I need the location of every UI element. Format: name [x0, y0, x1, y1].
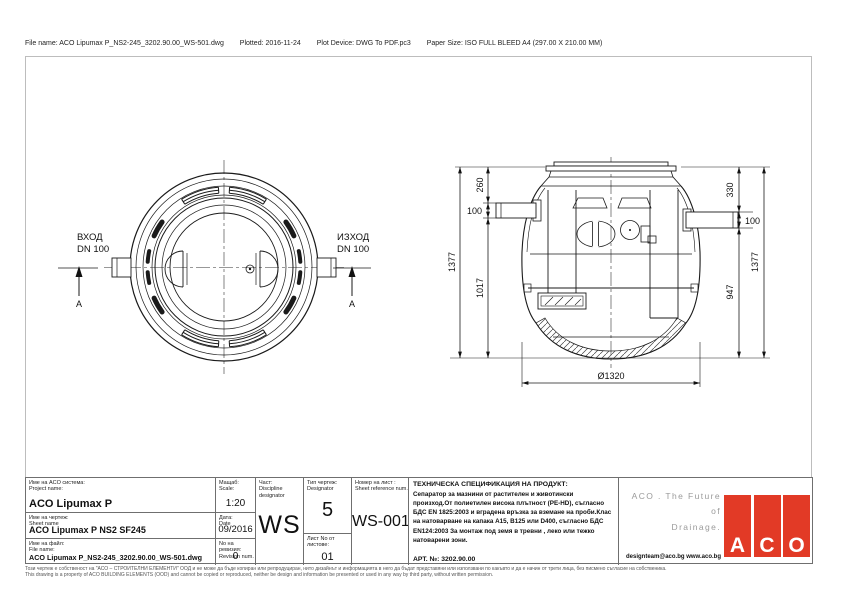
section-letter-left: A [76, 299, 82, 309]
tb-discipline-cell: Част: Discipline designator WS [256, 478, 304, 565]
type-value: 5 [304, 499, 351, 522]
section-view-drawing [450, 157, 770, 387]
plot-filename: File name: ACO Lipumax P_NS2-245_3202.90… [25, 40, 224, 47]
sheet-name: ACO Lipumax P NS2 SF245 [29, 525, 146, 535]
dim-diameter: Ø1320 [597, 371, 624, 381]
section-marker-left [58, 266, 98, 296]
sheetname-label-bg: Име на чертеж: [29, 515, 68, 521]
aco-logo-bar: O [783, 495, 810, 557]
inlet-dn-label: DN 100 [77, 244, 109, 255]
brand-slogan: ACO . The Future of Drainage. [629, 489, 721, 535]
sheetref-label-bg: Номер на лист : [355, 480, 396, 486]
sheetref-label-en: Sheet reference num. [355, 486, 408, 492]
type-label-bg: Тип чертеж: [307, 480, 337, 486]
spec-title: ТЕХНИЧЕСКА СПЕЦИФИКАЦИЯ НА ПРОДУКТ: [413, 481, 614, 488]
tb-filename-cell: Име на файл: File name: ACO Lipumax P_NS… [26, 539, 216, 565]
discipline-value: WS [256, 511, 303, 540]
section-marker-right [333, 266, 371, 296]
title-block: Име на ACO система: Project name: ACO Li… [25, 477, 813, 564]
dim-outlet-100: 100 [745, 216, 760, 226]
outlet-label: ИЗХОД [337, 232, 370, 243]
date-label-bg: Дата: [219, 515, 233, 521]
tb-sheetname-cell: Име на чертеж: Sheet name ACO Lipumax P … [26, 513, 216, 539]
plot-device: Plot Device: DWG To PDF.pc3 [317, 40, 411, 47]
slogan-line-2: Drainage. [672, 522, 721, 532]
section-letter-right: A [349, 299, 355, 309]
technical-drawing: ВХОД DN 100 ИЗХОД DN 100 A A [25, 56, 813, 477]
tb-sheets-cell: Лист No от листове: 01 [304, 534, 352, 565]
dim-947: 947 [725, 284, 735, 299]
logo-letter-c: C [759, 535, 774, 556]
plot-header: File name: ACO Lipumax P_NS2-245_3202.90… [25, 40, 616, 47]
dim-inlet-100: 100 [467, 206, 482, 216]
scale-value: 1:20 [216, 498, 255, 509]
spec-article-number: АРТ. №: 3202.90.00 [413, 556, 475, 563]
sheetref-value: WS-001 [352, 513, 408, 531]
aco-logo-bar: A [724, 495, 751, 557]
scale-label-en: Scale: [219, 486, 234, 492]
aco-logo-bar: C [754, 495, 781, 557]
dim-1017: 1017 [475, 278, 485, 298]
tb-brand-cell: ACO . The Future of Drainage. designteam… [619, 478, 814, 565]
filename-label-bg: Име на файл: [29, 541, 64, 547]
sheets-value: 01 [304, 551, 351, 563]
discipline-label-bg: Част: [259, 480, 273, 486]
tb-sheetref-cell: Номер на лист : Sheet reference num. WS-… [352, 478, 409, 565]
tb-project-cell: Име на ACO система: Project name: ACO Li… [26, 478, 216, 513]
logo-letter-o: O [788, 535, 804, 556]
slogan-line-1: ACO . The Future of [632, 491, 721, 516]
project-name: ACO Lipumax P [29, 498, 112, 510]
sheets-label: Лист No от листове: [307, 536, 335, 548]
cad-sheet: File name: ACO Lipumax P_NS2-245_3202.90… [0, 0, 842, 595]
tb-spec-cell: ТЕХНИЧЕСКА СПЕЦИФИКАЦИЯ НА ПРОДУКТ: Сепа… [409, 478, 619, 565]
discipline-label-en: Discipline designator [259, 486, 285, 498]
tb-type-cell: Тип чертеж: Designator 5 [304, 478, 352, 534]
tb-date-cell: Дата: Date 09/2016 [216, 513, 256, 539]
file-name: ACO Lipumax P_NS2-245_3202.90.00_WS-501.… [29, 553, 202, 562]
outlet-dn-label: DN 100 [337, 244, 369, 255]
plot-paper-size: Paper Size: ISO FULL BLEED A4 (297.00 X … [427, 40, 603, 47]
dim-total-left: 1377 [447, 252, 457, 272]
date-value: 09/2016 [216, 524, 255, 535]
brand-contacts: designteam@aco.bg www.aco.bg [626, 554, 721, 560]
aco-logo: A C O [724, 495, 810, 557]
dim-total-right: 1377 [750, 252, 760, 272]
copyright-line-en: This drawing is a property of ACO BUILDI… [25, 572, 725, 578]
tb-revision-cell: No на ревизия: Revision num. 0 [216, 539, 256, 565]
top-view-drawing [58, 160, 371, 374]
revision-value: 0 [216, 551, 255, 562]
tb-scale-cell: Мащаб: Scale: 1:20 [216, 478, 256, 513]
plot-date: Plotted: 2016-11-24 [240, 40, 301, 47]
project-label-bg: Име на ACO система: [29, 480, 85, 486]
logo-letter-a: A [730, 535, 745, 556]
dim-260: 260 [475, 177, 485, 192]
dim-330: 330 [725, 182, 735, 197]
spec-body: Сепаратор за мазнини от растителен и жив… [413, 490, 614, 545]
type-label-en: Designator [307, 486, 334, 492]
project-label-en: Project name: [29, 486, 63, 492]
scale-label-bg: Мащаб: [219, 480, 239, 486]
inlet-label: ВХОД [77, 232, 103, 243]
copyright-fineprint: Този чертеж е собственост на "АСО – СТРО… [25, 566, 725, 578]
